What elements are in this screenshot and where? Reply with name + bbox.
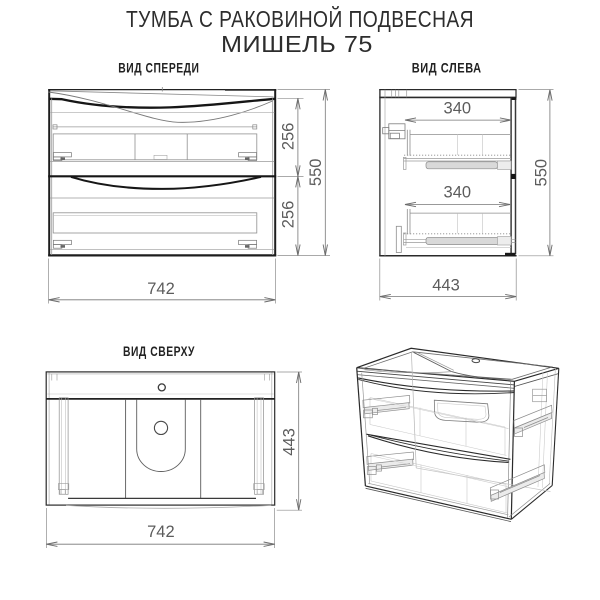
svg-text:МИШЕЛЬ 75: МИШЕЛЬ 75	[221, 31, 373, 57]
svg-text:ВИД СЛЕВА: ВИД СЛЕВА	[412, 61, 482, 76]
svg-text:550: 550	[307, 159, 325, 187]
svg-text:742: 742	[147, 280, 175, 298]
svg-text:443: 443	[281, 428, 299, 456]
svg-text:ВИД СВЕРХУ: ВИД СВЕРХУ	[123, 344, 195, 359]
svg-text:340: 340	[444, 184, 472, 202]
svg-text:256: 256	[280, 201, 298, 229]
svg-text:ТУМБА С РАКОВИНОЙ ПОДВЕСНАЯ: ТУМБА С РАКОВИНОЙ ПОДВЕСНАЯ	[126, 5, 474, 32]
svg-text:256: 256	[280, 123, 298, 151]
svg-text:443: 443	[432, 276, 460, 294]
svg-text:340: 340	[444, 100, 472, 118]
svg-text:ВИД СПЕРЕДИ: ВИД СПЕРЕДИ	[118, 61, 199, 76]
svg-text:550: 550	[533, 159, 551, 187]
svg-text:742: 742	[147, 523, 175, 541]
